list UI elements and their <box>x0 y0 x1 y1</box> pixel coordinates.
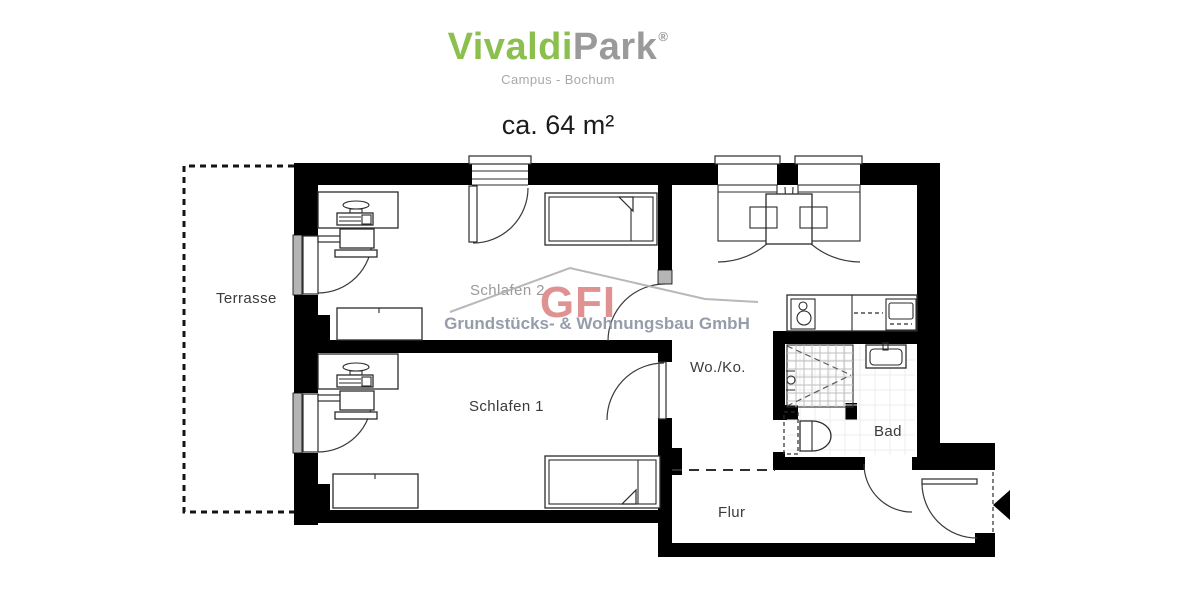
floorplan-page: VivaldiPark® Campus - Bochum ca. 64 m² <box>0 0 1200 600</box>
window-swing-arc <box>473 188 528 243</box>
floorplan-drawing: Terrasse Schlafen 2 Schlafen 1 Wo./Ko. B… <box>0 0 1200 600</box>
shower-tiles <box>787 345 853 407</box>
label-bad: Bad <box>874 423 902 440</box>
wohnkueche-furniture <box>750 194 917 331</box>
door-swing-arc <box>864 464 912 512</box>
chair-back <box>335 412 377 419</box>
wall-bad-left <box>773 331 785 420</box>
wall-bedroom-divider <box>294 340 672 353</box>
wall-bad-bottom-a <box>773 457 865 470</box>
wall-top-a <box>294 163 472 185</box>
door-leaf <box>659 362 666 419</box>
dining-table <box>766 194 812 244</box>
door-jamb-outer <box>293 235 302 295</box>
wall-top-b <box>528 163 718 185</box>
wall-flur-bottom <box>658 543 995 557</box>
bed-frame <box>545 193 657 245</box>
label-terrasse: Terrasse <box>216 290 277 307</box>
terrace-dashed-border <box>184 166 294 512</box>
wall-bad-top <box>773 331 917 344</box>
chair-seat <box>340 391 374 410</box>
window-frame-lines <box>472 171 528 185</box>
door-bad <box>864 464 912 512</box>
wall-inner-jamb-gray <box>658 270 672 284</box>
entry-door-leaf <box>922 479 977 484</box>
door-jamb-outer <box>293 393 302 453</box>
door-schlafen1-wohnkueche <box>607 362 666 420</box>
wc-bowl <box>800 421 831 451</box>
wall-inner-vertical-mid <box>658 340 672 362</box>
label-flur: Flur <box>718 504 745 521</box>
window-schlafen2 <box>469 156 531 243</box>
wall-bad-bottom-b <box>912 457 940 470</box>
window-sill <box>715 156 780 164</box>
label-wohnkueche: Wo./Ko. <box>690 359 746 376</box>
wall-shower-stub-right <box>845 403 857 420</box>
sideboard <box>333 474 418 508</box>
door-jamb-inner <box>303 394 318 452</box>
door-jamb-inner <box>303 236 318 294</box>
label-schlafen1: Schlafen 1 <box>469 398 544 415</box>
entry-arrow-icon <box>993 490 1010 520</box>
wall-stub-lower <box>318 484 330 511</box>
chair-back <box>335 250 377 257</box>
chair-seat <box>340 229 374 248</box>
terrace <box>184 166 294 512</box>
window-sill <box>795 156 862 164</box>
door-swing-arc <box>607 363 664 420</box>
gfi-watermark: GFI Grundstücks- & Wohnungsbau GmbH <box>444 268 758 333</box>
wall-top-window-pier <box>777 163 798 185</box>
wall-inner-vertical-top <box>658 185 672 270</box>
watermark-company-text: Grundstücks- & Wohnungsbau GmbH <box>444 314 750 333</box>
wall-schlafen1-bottom <box>294 510 670 523</box>
wall-stub-upper <box>318 315 330 342</box>
window-sill <box>469 156 531 164</box>
window-leaf <box>469 186 477 242</box>
bed-frame <box>545 456 660 508</box>
entry-door-swing-arc <box>922 483 977 538</box>
schlafen1-furniture <box>318 354 660 508</box>
wall-right <box>917 163 940 443</box>
